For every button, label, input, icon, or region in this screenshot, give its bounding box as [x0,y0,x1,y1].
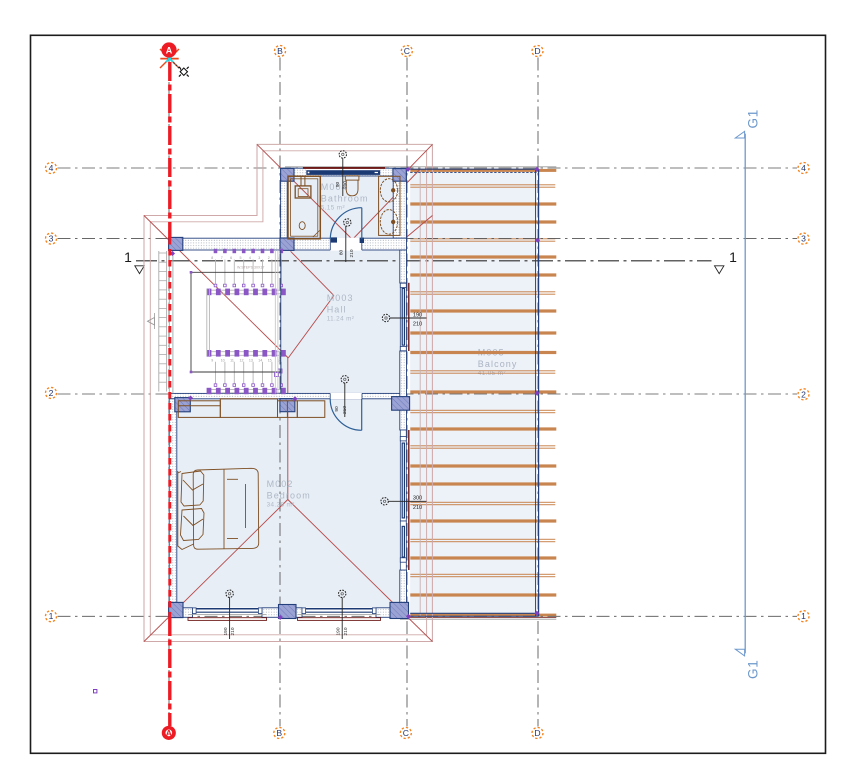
svg-text:300: 300 [413,496,422,502]
svg-text:G1: G1 [746,659,761,679]
svg-text:3: 3 [258,256,260,260]
svg-text:1: 1 [729,249,737,265]
svg-text:210: 210 [349,249,355,257]
svg-text:4: 4 [801,163,806,173]
svg-text:10: 10 [221,358,225,362]
svg-text:Bathroom: Bathroom [321,193,369,203]
svg-text:5: 5 [240,256,242,260]
svg-text:34.28 m²: 34.28 m² [267,502,295,509]
svg-text:M002: M002 [267,479,294,489]
svg-text:6: 6 [230,256,232,260]
svg-text:D: D [534,46,540,56]
svg-text:W.STEPS 30X17: W.STEPS 30X17 [237,265,264,269]
svg-text:A: A [166,45,173,55]
svg-text:210: 210 [230,627,236,635]
svg-text:M003: M003 [327,293,354,303]
svg-text:13: 13 [249,358,253,362]
svg-text:G1: G1 [746,109,761,129]
svg-text:90: 90 [335,182,341,188]
svg-text:8: 8 [211,256,213,260]
svg-text:210: 210 [342,181,348,189]
svg-text:3: 3 [49,234,54,244]
svg-text:2: 2 [801,389,806,399]
svg-text:C: C [404,46,410,56]
svg-text:14: 14 [258,358,262,362]
svg-text:D: D [534,728,540,738]
svg-text:9: 9 [211,358,213,362]
svg-text:1: 1 [49,611,54,621]
svg-text:11: 11 [230,358,234,362]
svg-text:12: 12 [240,358,244,362]
svg-text:3: 3 [801,234,806,244]
svg-text:4: 4 [49,163,54,173]
svg-text:80: 80 [339,250,345,256]
svg-text:1: 1 [124,249,132,265]
svg-text:A: A [166,728,172,738]
svg-text:210: 210 [342,406,348,414]
svg-text:210: 210 [413,322,422,328]
svg-text:190: 190 [223,627,229,635]
svg-text:210: 210 [343,627,349,635]
svg-text:190: 190 [413,312,422,318]
svg-text:2: 2 [268,256,270,260]
svg-text:1: 1 [801,611,806,621]
svg-text:Balcony: Balcony [478,359,518,369]
svg-text:B: B [276,728,282,738]
svg-text:15: 15 [268,358,272,362]
svg-text:7: 7 [221,256,223,260]
svg-text:11.24 m²: 11.24 m² [327,316,355,323]
svg-text:C: C [403,728,409,738]
svg-text:5.15 m²: 5.15 m² [321,205,345,212]
svg-text:4: 4 [249,256,251,260]
svg-text:210: 210 [413,505,422,511]
svg-text:Bedroom: Bedroom [267,490,311,500]
svg-text:2: 2 [49,388,54,398]
svg-text:190: 190 [335,627,341,635]
svg-text:B: B [277,46,283,56]
svg-text:90: 90 [334,406,340,412]
svg-text:Hall: Hall [327,304,347,314]
